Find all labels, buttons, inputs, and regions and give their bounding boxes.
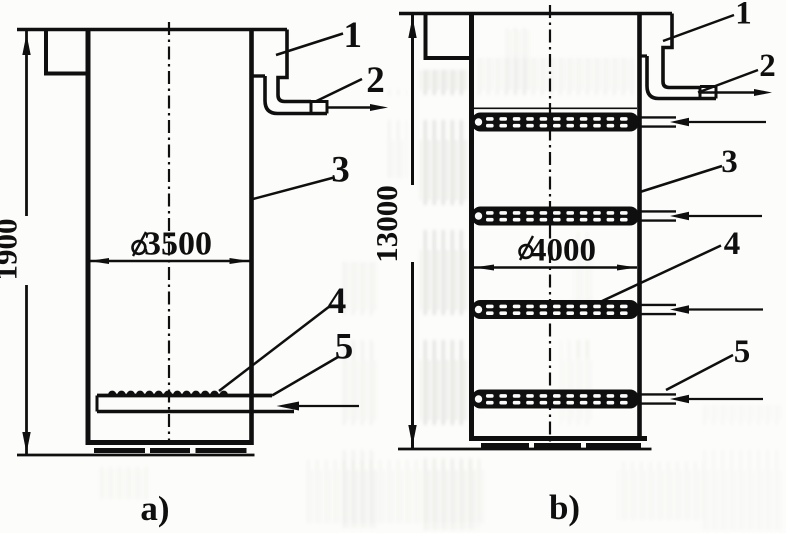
svg-text:2: 2 [759,48,776,84]
svg-text:1900: 1900 [0,219,24,281]
svg-text:1: 1 [343,15,362,56]
svg-text:1: 1 [735,0,752,32]
svg-text:b): b) [549,488,580,527]
svg-text:3500: 3500 [144,226,212,263]
svg-text:a): a) [140,489,169,528]
svg-text:2: 2 [366,60,385,101]
svg-text:4: 4 [724,226,741,262]
svg-text:4: 4 [328,281,347,322]
svg-text:5: 5 [734,334,751,370]
svg-text:3: 3 [331,150,350,191]
svg-text:5: 5 [335,327,354,368]
svg-text:3: 3 [721,144,738,180]
svg-text:13000: 13000 [369,185,404,263]
svg-text:4000: 4000 [530,233,596,269]
